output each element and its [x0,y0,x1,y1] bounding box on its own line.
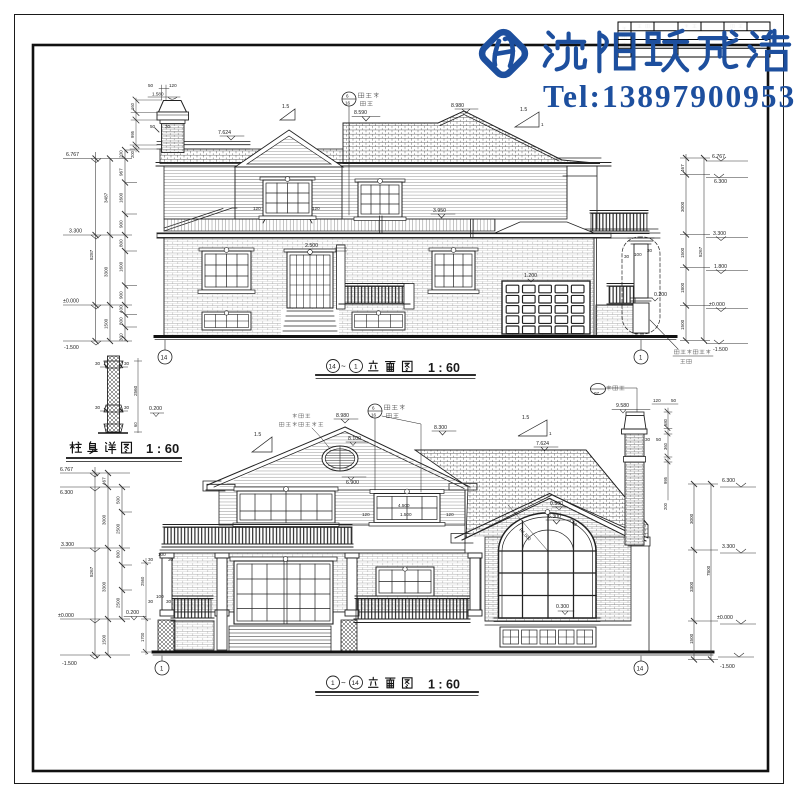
svg-text:120: 120 [446,512,454,517]
svg-text:16: 16 [345,101,351,106]
svg-text:3487: 3487 [104,192,109,203]
svg-text:160: 160 [130,102,135,110]
svg-text:8287: 8287 [89,249,94,260]
svg-text:967: 967 [119,168,124,176]
svg-text:Tel:13897900953: Tel:13897900953 [543,79,796,114]
svg-text:120: 120 [653,398,661,403]
svg-text:50: 50 [148,83,154,88]
svg-text:1.5: 1.5 [254,432,261,438]
svg-text:7.624: 7.624 [218,130,231,136]
svg-text:900: 900 [119,291,124,299]
svg-text:7.624: 7.624 [536,441,549,447]
svg-text:30: 30 [124,405,130,410]
svg-text:995: 995 [130,130,135,138]
svg-text:-1.500: -1.500 [62,661,77,667]
svg-text:3.300: 3.300 [61,542,74,548]
svg-text:120: 120 [169,83,177,88]
svg-text:1 : 60: 1 : 60 [428,361,460,375]
svg-text:1500: 1500 [680,319,685,330]
svg-text:8.980: 8.980 [451,103,464,109]
svg-text:4.500: 4.500 [398,503,410,508]
svg-text:8.980: 8.980 [336,413,349,419]
svg-text:0.200: 0.200 [149,406,162,412]
svg-text:120: 120 [253,206,261,211]
svg-text:360: 360 [663,442,668,450]
svg-text:2500: 2500 [116,597,121,608]
svg-text:±0.000: ±0.000 [709,302,725,308]
svg-text:50: 50 [671,398,677,403]
svg-text:6.300: 6.300 [722,478,735,484]
svg-text:500: 500 [116,496,121,504]
svg-text:1.500: 1.500 [400,512,412,517]
svg-text:3.300: 3.300 [722,544,735,550]
svg-text:800: 800 [119,317,124,325]
svg-text:1500: 1500 [104,318,109,329]
svg-text:1: 1 [354,364,358,371]
svg-text:1.800: 1.800 [714,264,727,270]
svg-text:900: 900 [119,220,124,228]
svg-text:3000: 3000 [689,513,694,524]
svg-text:1.5: 1.5 [282,104,289,110]
svg-text:14: 14 [637,667,644,673]
svg-text:9.580: 9.580 [616,403,629,409]
svg-text:±0.000: ±0.000 [717,615,733,621]
svg-text:6.300: 6.300 [548,514,561,520]
svg-text:8.590: 8.590 [354,110,367,116]
svg-text:200: 200 [119,150,124,158]
svg-text:1: 1 [541,122,544,127]
svg-text:0.200: 0.200 [126,610,139,616]
svg-text:30: 30 [148,557,154,562]
svg-text:100: 100 [634,252,642,257]
svg-text:120: 120 [312,206,320,211]
svg-text:3000: 3000 [102,514,107,525]
svg-text:580: 580 [663,418,668,426]
svg-text:50: 50 [656,437,662,442]
svg-text:1.5: 1.5 [522,415,529,421]
svg-text:0.300: 0.300 [556,604,569,610]
svg-text:1 : 60: 1 : 60 [146,441,179,456]
svg-text:0.500: 0.500 [550,501,563,507]
svg-text:3.300: 3.300 [713,231,726,237]
svg-text:30: 30 [647,248,653,253]
svg-text:30: 30 [165,124,171,129]
svg-text:1800: 1800 [680,282,685,293]
svg-text:800: 800 [119,239,124,247]
svg-text:800: 800 [116,550,121,558]
svg-text:400: 400 [119,305,124,313]
svg-text:1 : 60: 1 : 60 [428,678,460,692]
svg-text:6.300: 6.300 [714,179,727,185]
svg-text:6.767: 6.767 [66,152,79,158]
svg-text:1: 1 [549,431,552,436]
svg-text:6.767: 6.767 [60,467,73,473]
svg-text:3300: 3300 [102,581,107,592]
svg-text:1600: 1600 [119,261,124,272]
svg-text:2.500: 2.500 [305,243,318,249]
svg-text:200: 200 [663,502,668,510]
svg-text:6: 6 [372,406,375,411]
svg-text:6.767: 6.767 [712,154,725,160]
svg-text:30: 30 [645,437,651,442]
svg-text:30: 30 [95,361,101,366]
svg-text:-1.500: -1.500 [64,345,79,351]
svg-text:6.900: 6.900 [346,480,359,486]
svg-text:-1.500: -1.500 [713,347,728,353]
svg-text:14: 14 [352,680,360,687]
svg-text:120: 120 [362,512,370,517]
svg-text:3300: 3300 [689,581,694,592]
svg-text:2500: 2500 [116,523,121,534]
svg-text:1.580: 1.580 [152,92,164,97]
svg-text:1500: 1500 [102,634,107,645]
svg-text:14: 14 [329,364,337,371]
svg-text:995: 995 [663,476,668,484]
svg-text:1: 1 [331,680,335,687]
svg-text:30: 30 [168,557,174,562]
svg-text:467: 467 [680,164,685,172]
svg-text:7800: 7800 [706,565,711,576]
svg-text:3.950: 3.950 [433,208,446,214]
svg-text:60: 60 [133,422,138,427]
svg-text:14: 14 [161,356,168,362]
svg-text:8.300: 8.300 [434,425,447,431]
svg-text:1.5: 1.5 [520,107,527,113]
svg-text:3000: 3000 [680,201,685,212]
svg-text:8267: 8267 [89,566,94,577]
svg-text:3300: 3300 [104,266,109,277]
svg-text:-1.500: -1.500 [720,664,735,670]
svg-text:16: 16 [371,413,377,418]
svg-text:±0.000: ±0.000 [63,299,79,305]
svg-text:300: 300 [119,333,124,341]
svg-text:1500: 1500 [689,633,694,644]
svg-text:30: 30 [95,405,101,410]
svg-text:8.100: 8.100 [348,436,361,442]
svg-text:~: ~ [341,362,346,371]
svg-text:6: 6 [346,94,349,99]
svg-text:1.200: 1.200 [524,273,537,279]
svg-text:30: 30 [124,361,130,366]
svg-text:07: 07 [594,391,600,396]
svg-text:8267: 8267 [698,246,703,257]
svg-text:2560: 2560 [140,576,145,586]
svg-text:6.300: 6.300 [60,490,73,496]
svg-text:1600: 1600 [119,192,124,203]
svg-text:200: 200 [130,150,135,158]
svg-text:0.200: 0.200 [654,292,667,298]
svg-text:467: 467 [102,477,107,485]
svg-text:30: 30 [166,599,172,604]
svg-text:1500: 1500 [680,247,685,258]
svg-text:100: 100 [156,594,164,599]
svg-text:±0.000: ±0.000 [58,613,74,619]
svg-text:30: 30 [624,254,630,259]
svg-text:100: 100 [158,552,166,557]
svg-text:30: 30 [148,599,154,604]
svg-text:3.300: 3.300 [69,229,82,235]
svg-text:1700: 1700 [140,632,145,642]
svg-text:2560: 2560 [133,385,138,396]
svg-text:~: ~ [341,679,346,688]
